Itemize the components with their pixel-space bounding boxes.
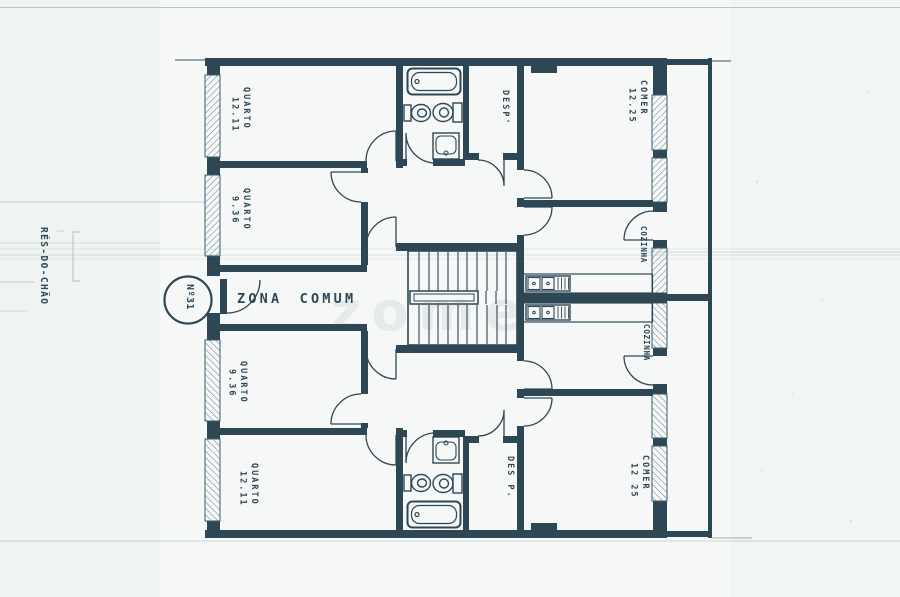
floor-plan-canvas: zome QUARTO12.11 QUARTO9.36 DESP (0, 0, 900, 597)
common-zone-label: ZONA COMUM (237, 291, 356, 307)
paper-shading-right (730, 0, 900, 597)
room-label-desp-bottom: DES P. (505, 456, 515, 499)
unit-number-label: Nº31 (184, 284, 195, 310)
paper-shading-left (0, 0, 160, 597)
room-label-cozinha-bottom: COZINHA (642, 324, 651, 361)
room-label-cozinha-top: COZINHA (639, 226, 648, 263)
room-label-desp-top: DESP' (500, 90, 510, 126)
scanned-floor-plan-page: zome QUARTO12.11 QUARTO9.36 DESP (0, 0, 900, 597)
floor-level-label: RÉS-DO-CHÃO (38, 227, 50, 305)
watermark-text: zome (330, 280, 531, 343)
